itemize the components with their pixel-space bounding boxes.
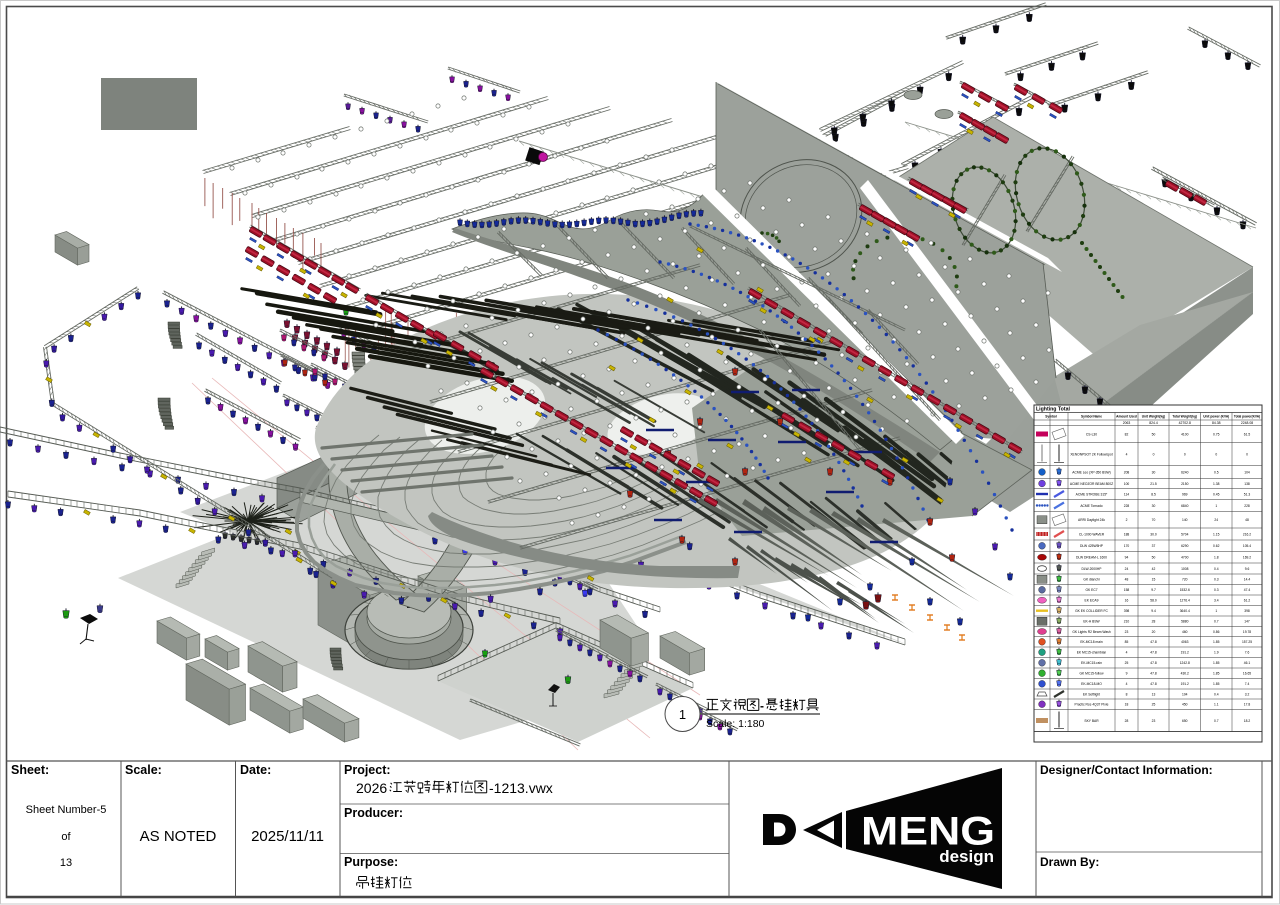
svg-text:Scale:: Scale: [125,763,162,777]
svg-text:1.1: 1.1 [1214,703,1219,707]
svg-text:14.4: 14.4 [1244,578,1251,582]
svg-text:6240: 6240 [1181,470,1189,474]
svg-text:1008: 1008 [1181,567,1189,571]
svg-text:ACME NEOZOR BEAM 800Z: ACME NEOZOR BEAM 800Z [1070,482,1113,486]
svg-text:30: 30 [1152,470,1156,474]
svg-text:208: 208 [1124,470,1130,474]
svg-text:design: design [939,847,994,866]
svg-text:2025/11/11: 2025/11/11 [251,828,324,845]
svg-text:0.4: 0.4 [1214,567,1219,571]
svg-text:1.85: 1.85 [1213,661,1220,665]
svg-text:191.2: 191.2 [1181,682,1189,686]
svg-text:157.25: 157.25 [1242,640,1252,644]
svg-text:0.86: 0.86 [1213,630,1220,634]
svg-text:0.62: 0.62 [1213,544,1220,548]
svg-text:Scale: 1:180: Scale: 1:180 [706,718,765,730]
svg-text:16: 16 [1125,599,1129,603]
svg-text:CS-L30: CS-L30 [1086,432,1097,436]
svg-text:4063: 4063 [1181,640,1189,644]
svg-text:1276.4: 1276.4 [1180,599,1190,603]
svg-text:824.4: 824.4 [1149,421,1158,425]
svg-text:9.4: 9.4 [1151,609,1156,613]
svg-text:4700: 4700 [1181,556,1189,560]
svg-text:Producer:: Producer: [344,806,403,820]
svg-text:1.85: 1.85 [1213,682,1220,686]
svg-text:21.5: 21.5 [1150,482,1157,486]
svg-text:82: 82 [1125,432,1129,436]
svg-text:48: 48 [1125,578,1129,582]
svg-text:EK-MC18-MO: EK-MC18-MO [1081,682,1102,686]
svg-text:170: 170 [1124,544,1130,548]
svg-text:210: 210 [1124,620,1130,624]
svg-text:18: 18 [1125,703,1129,707]
svg-text:16.65: 16.65 [1243,672,1251,676]
svg-text:140: 140 [1182,518,1188,522]
svg-text:25: 25 [1152,703,1156,707]
svg-text:Sheet:: Sheet: [11,763,49,777]
svg-text:17.8: 17.8 [1244,703,1251,707]
svg-text:-: - [760,699,764,713]
svg-text:2063: 2063 [1123,421,1131,425]
svg-text:9.7: 9.7 [1151,588,1156,592]
svg-text:Drawn By:: Drawn By: [1040,855,1099,869]
svg-text:47.8: 47.8 [1150,651,1157,655]
svg-text:Unit Weight(kg): Unit Weight(kg) [1142,415,1166,419]
svg-text:18.2: 18.2 [1244,719,1251,723]
svg-text:Amount Used: Amount Used [1116,415,1137,419]
svg-text:1.85: 1.85 [1213,640,1220,644]
svg-text:AS NOTED: AS NOTED [140,828,217,845]
svg-text:5704: 5704 [1181,532,1189,536]
svg-text:1.8: 1.8 [1214,556,1219,560]
svg-text:ACME Tornado: ACME Tornado [1080,504,1102,508]
svg-text:50: 50 [1152,432,1156,436]
svg-text:61.2: 61.2 [1244,599,1251,603]
svg-text:398: 398 [1124,609,1130,613]
svg-text:EK-MC18 main: EK-MC18 main [1080,640,1103,644]
svg-text:Total power(KVA): Total power(KVA) [1234,415,1260,419]
svg-text:28: 28 [1152,620,1156,624]
svg-text:0.4: 0.4 [1214,692,1219,696]
svg-text:30: 30 [1152,504,1156,508]
svg-text:EK ECA9: EK ECA9 [1085,599,1099,603]
svg-text:7.6: 7.6 [1245,651,1250,655]
svg-text:4: 4 [1126,682,1128,686]
svg-text:ARRI Daylight 24k: ARRI Daylight 24k [1078,518,1105,522]
svg-text:GK EC7: GK EC7 [1085,588,1097,592]
svg-text:85: 85 [1125,640,1129,644]
svg-text:Total Weight(kg): Total Weight(kg) [1172,415,1197,419]
svg-text:EK-H BSW: EK-H BSW [1083,620,1100,624]
svg-text:Project:: Project: [344,763,391,777]
svg-text:7.4: 7.4 [1245,682,1250,686]
svg-text:84.38: 84.38 [1212,421,1221,425]
svg-text:Practic Rce 4Q37 Pixie: Practic Rce 4Q37 Pixie [1075,703,1109,707]
svg-text:Designer/Contact Information:: Designer/Contact Information: [1040,763,1213,777]
svg-text:0.5: 0.5 [1214,470,1219,474]
svg-text:ACME Leo (XP-350 BSW): ACME Leo (XP-350 BSW) [1072,470,1110,474]
svg-text:42702.8: 42702.8 [1179,421,1191,425]
svg-text:0.7: 0.7 [1214,719,1219,723]
svg-text:Unit power (KVA): Unit power (KVA) [1203,415,1229,419]
svg-text:1.38: 1.38 [1213,482,1220,486]
svg-text:228: 228 [1124,504,1130,508]
svg-text:2: 2 [1126,518,1128,522]
svg-text:48: 48 [1245,518,1249,522]
svg-text:CL-1000 WAVER: CL-1000 WAVER [1079,532,1105,536]
svg-text:47.4: 47.4 [1244,588,1251,592]
svg-text:0: 0 [1246,452,1248,456]
svg-text:61.5: 61.5 [1244,432,1251,436]
svg-text:47.8: 47.8 [1150,672,1157,676]
svg-text:5880: 5880 [1181,620,1189,624]
svg-text:4: 4 [1126,452,1128,456]
svg-text:SKY BAR: SKY BAR [1084,719,1099,723]
svg-text:9.6: 9.6 [1245,567,1250,571]
svg-text:94: 94 [1125,556,1129,560]
svg-text:42: 42 [1152,567,1156,571]
svg-text:47.8: 47.8 [1150,682,1157,686]
svg-text:70: 70 [1152,518,1156,522]
svg-text:2150: 2150 [1181,482,1189,486]
svg-text:58.0: 58.0 [1150,599,1157,603]
svg-text:158: 158 [1124,588,1130,592]
svg-text:13: 13 [1152,692,1156,696]
svg-text:51.3: 51.3 [1244,492,1251,496]
svg-text:1.85: 1.85 [1213,672,1220,676]
svg-text:25: 25 [1125,661,1129,665]
svg-text:Purpose:: Purpose: [344,855,398,869]
svg-text:1: 1 [1215,609,1217,613]
svg-text:15: 15 [1152,578,1156,582]
svg-text:of: of [61,831,71,843]
svg-text:0: 0 [1215,452,1217,456]
svg-text:13: 13 [60,857,72,869]
svg-text:147: 147 [1244,620,1250,624]
svg-text:1.9: 1.9 [1214,651,1219,655]
svg-text:24: 24 [1125,567,1129,571]
svg-text:2248.08: 2248.08 [1241,421,1253,425]
svg-text:114: 114 [1124,492,1129,496]
svg-text:3640.4: 3640.4 [1180,609,1190,613]
svg-text:20: 20 [1152,630,1156,634]
svg-text:228: 228 [1244,504,1250,508]
svg-text:23: 23 [1152,719,1156,723]
svg-text:GK Lights R2 Beam Wash: GK Lights R2 Beam Wash [1072,630,1111,634]
svg-text:37: 37 [1152,544,1156,548]
svg-text:9: 9 [1126,672,1128,676]
svg-text:105.4: 105.4 [1243,544,1251,548]
svg-text:460: 460 [1182,630,1188,634]
svg-text:50: 50 [1152,556,1156,560]
svg-text:DLW-2000HP: DLW-2000HP [1081,567,1102,571]
svg-text:24: 24 [1214,518,1218,522]
svg-text:Symbol Name: Symbol Name [1081,415,1102,419]
svg-text:398: 398 [1244,609,1250,613]
svg-text:GK dianchi: GK dianchi [1083,578,1099,582]
svg-text:4100: 4100 [1181,432,1189,436]
svg-text:2026: 2026 [356,780,387,796]
svg-text:GK MC15-follow: GK MC15-follow [1079,672,1104,676]
svg-text:191.2: 191.2 [1181,651,1189,655]
svg-text:EK Softlight: EK Softlight [1083,692,1100,696]
svg-text:Sheet Number-5: Sheet Number-5 [26,804,107,816]
svg-text:650: 650 [1182,719,1188,723]
svg-text:GK EK COLLIDER FC: GK EK COLLIDER FC [1075,609,1108,613]
svg-text:1242.8: 1242.8 [1180,661,1190,665]
svg-text:188: 188 [1124,532,1130,536]
svg-text:100: 100 [1124,482,1130,486]
svg-text:104: 104 [1182,692,1188,696]
svg-text:28: 28 [1125,719,1129,723]
svg-text:1: 1 [1215,504,1217,508]
svg-text:0: 0 [1184,452,1186,456]
svg-text:1.15: 1.15 [1213,532,1220,536]
svg-text:0.75: 0.75 [1213,432,1220,436]
svg-text:6290: 6290 [1181,544,1189,548]
svg-text:XENONPSOT 2K Followspot: XENONPSOT 2K Followspot [1070,452,1112,456]
svg-text:DLW 425W5HP: DLW 425W5HP [1080,544,1104,548]
svg-text:47.8: 47.8 [1150,640,1157,644]
svg-text:430.2: 430.2 [1181,672,1189,676]
svg-text:0.45: 0.45 [1213,492,1220,496]
svg-text:104: 104 [1244,470,1250,474]
svg-text:Lighting Total: Lighting Total [1036,407,1070,413]
svg-text:DLW DREAM-L 1600: DLW DREAM-L 1600 [1076,556,1107,560]
svg-text:47.8: 47.8 [1150,661,1157,665]
svg-text:EK MC15-chambian: EK MC15-chambian [1077,651,1107,655]
svg-text:138: 138 [1244,482,1250,486]
svg-text:46.1: 46.1 [1244,661,1251,665]
svg-text:8: 8 [1126,692,1128,696]
svg-text:Symbol: Symbol [1045,415,1057,419]
svg-text:1: 1 [679,707,686,722]
svg-text:0.3: 0.3 [1214,578,1219,582]
svg-text:4: 4 [1126,651,1128,655]
svg-text:8.5: 8.5 [1151,492,1156,496]
svg-text:720: 720 [1182,578,1188,582]
svg-text:1532.6: 1532.6 [1180,588,1190,592]
svg-text:23: 23 [1125,630,1129,634]
svg-text:19.78: 19.78 [1243,630,1251,634]
svg-text:Date:: Date: [240,763,271,777]
svg-text:30.0: 30.0 [1150,532,1157,536]
svg-text:0.3: 0.3 [1214,588,1219,592]
svg-text:-1213.vwx: -1213.vwx [489,780,553,796]
svg-text:216.2: 216.2 [1243,532,1251,536]
svg-text:EK-MC15-rain: EK-MC15-rain [1081,661,1102,665]
svg-text:169.2: 169.2 [1243,556,1251,560]
svg-text:6840: 6840 [1181,504,1189,508]
svg-text:ACME STROBE 315*: ACME STROBE 315* [1076,492,1108,496]
svg-text:3.2: 3.2 [1245,692,1250,696]
svg-text:969: 969 [1182,492,1188,496]
svg-text:0: 0 [1153,452,1155,456]
svg-text:0.7: 0.7 [1214,620,1219,624]
svg-text:3.4: 3.4 [1214,599,1219,603]
svg-text:450: 450 [1182,703,1188,707]
